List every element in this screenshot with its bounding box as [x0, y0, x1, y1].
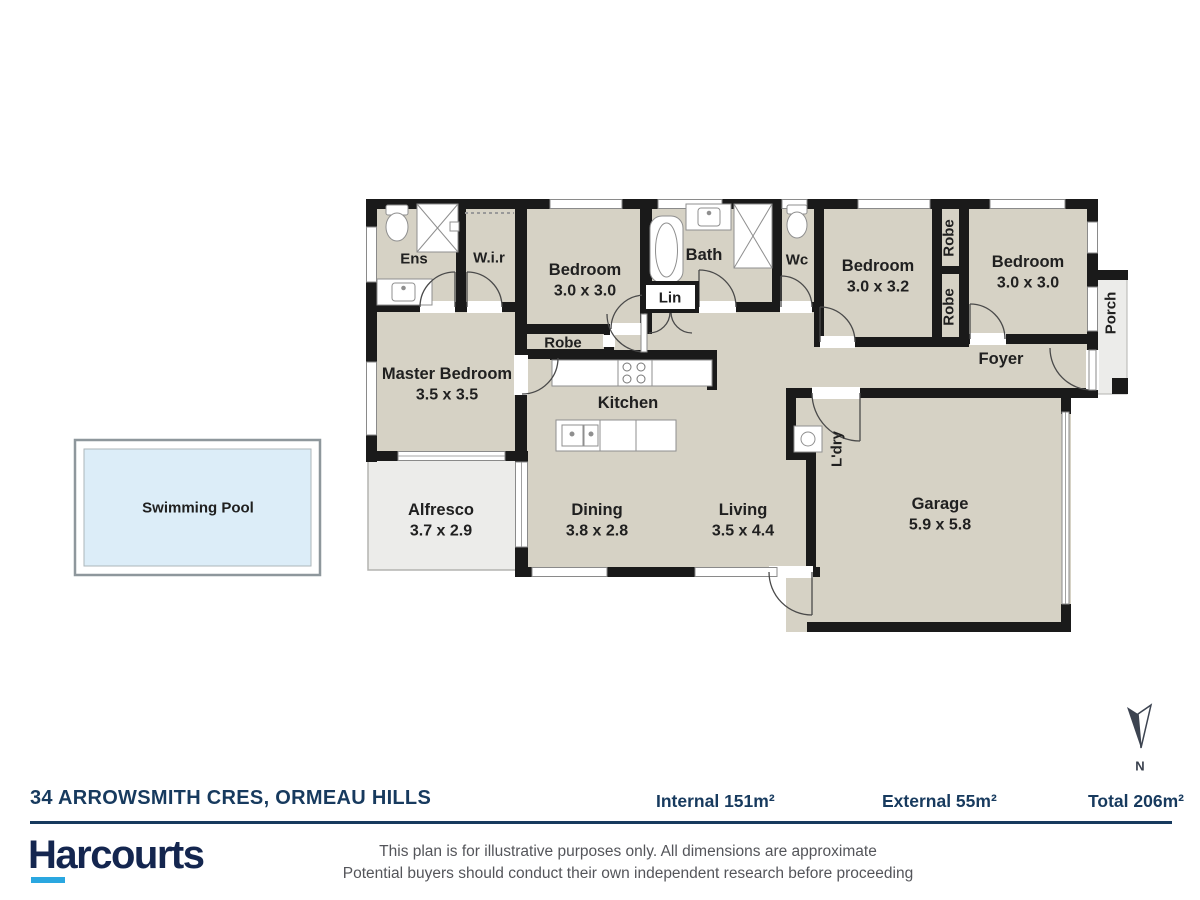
room-label-living: Living [719, 501, 768, 519]
room-label-lin: Lin [659, 290, 682, 307]
room-label-ldry: L'dry [829, 430, 846, 467]
floor-plan: Ens W.i.r Bedroom 3.0 x 3.0 Bath Lin Wc … [0, 0, 1200, 780]
room-label-kitchen: Kitchen [598, 394, 659, 412]
harcourts-logo-underline [31, 877, 65, 883]
room-label-wc: Wc [786, 252, 809, 269]
disclaimer-line-1: This plan is for illustrative purposes o… [300, 841, 956, 863]
room-label-ens: Ens [400, 251, 428, 268]
room-label-robe-bottom: Robe [941, 288, 958, 326]
room-label-wir: W.i.r [473, 250, 505, 267]
laundry-tub-icon [794, 426, 822, 452]
room-label-bedroom1: Bedroom [549, 261, 621, 279]
room-dims-alfresco: 3.7 x 2.9 [410, 523, 472, 540]
bathtub-icon [650, 216, 683, 283]
room-label-bath: Bath [686, 246, 723, 264]
footer-divider [30, 821, 1172, 824]
room-dims-master: 3.5 x 3.5 [416, 387, 478, 404]
disclaimer: This plan is for illustrative purposes o… [300, 841, 956, 885]
room-label-master: Master Bedroom [382, 365, 512, 383]
toilet-icon [386, 213, 408, 241]
room-label-foyer: Foyer [979, 350, 1025, 368]
floorplan-page: Ens W.i.r Bedroom 3.0 x 3.0 Bath Lin Wc … [0, 0, 1200, 900]
room-label-alfresco: Alfresco [408, 501, 474, 519]
room-label-porch: Porch [1103, 292, 1120, 335]
north-arrow-icon: N [1127, 705, 1151, 774]
toilet-icon [787, 212, 807, 238]
external-area: External 55m² [882, 791, 997, 812]
room-dims-bedroom1: 3.0 x 3.0 [554, 283, 616, 300]
disclaimer-line-2: Potential buyers should conduct their ow… [300, 863, 956, 885]
room-label-bedroom3: Bedroom [992, 253, 1064, 271]
room-dims-garage: 5.9 x 5.8 [909, 517, 971, 534]
room-label-bedroom2: Bedroom [842, 257, 914, 275]
room-label-garage: Garage [912, 495, 969, 513]
room-label-robe-small: Robe [544, 335, 582, 352]
property-address: 34 ARROWSMITH CRES, ORMEAU HILLS [30, 787, 431, 810]
cooktop-icon [618, 360, 652, 386]
room-label-pool: Swimming Pool [142, 500, 254, 517]
room-dims-dining: 3.8 x 2.8 [566, 523, 628, 540]
harcourts-logo: Harcourts [28, 833, 203, 878]
room-dims-bedroom2: 3.0 x 3.2 [847, 279, 909, 296]
internal-area: Internal 151m² [656, 791, 775, 812]
room-label-robe-top: Robe [941, 219, 958, 257]
north-label: N [1135, 759, 1144, 774]
room-dims-living: 3.5 x 4.4 [712, 523, 774, 540]
room-label-dining: Dining [571, 501, 622, 519]
total-area: Total 206m² [1088, 791, 1184, 812]
room-dims-bedroom3: 3.0 x 3.0 [997, 275, 1059, 292]
